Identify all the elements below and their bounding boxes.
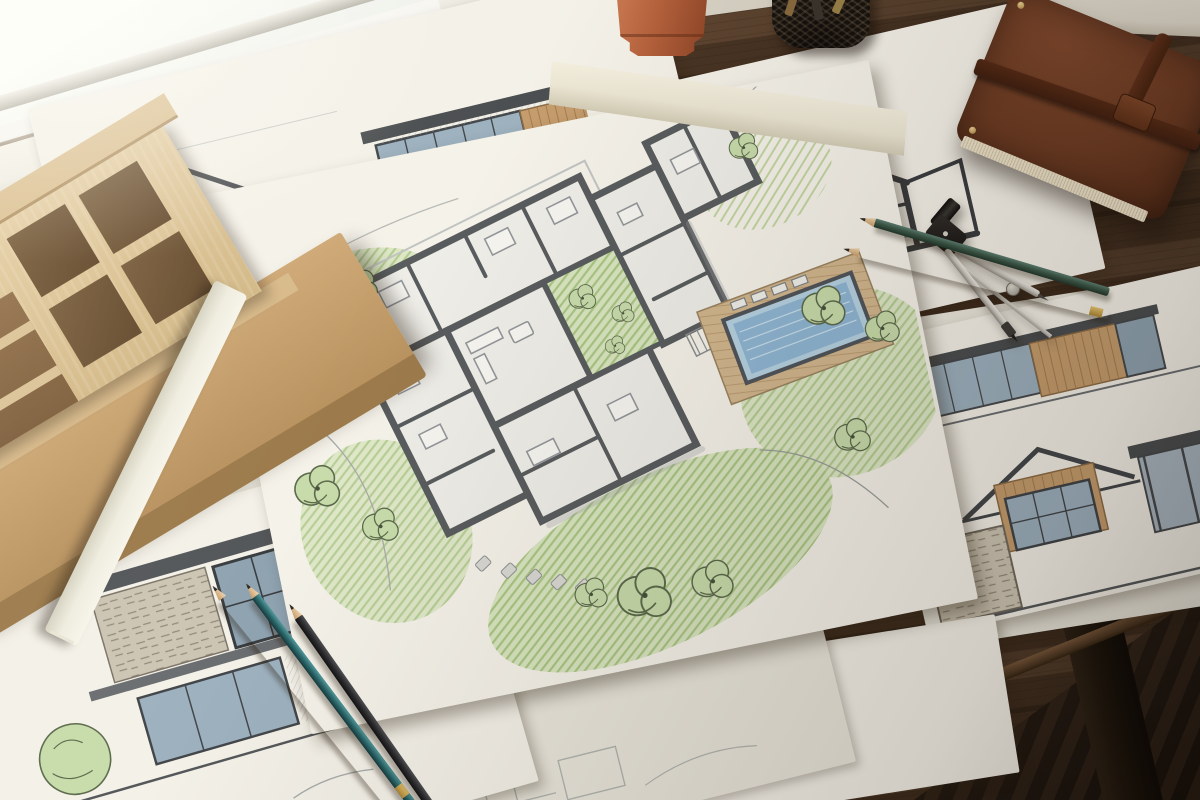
- pencil-in-cup: [809, 0, 824, 21]
- model-window: [79, 161, 172, 254]
- journal-stud: [968, 126, 977, 135]
- model-window: [7, 204, 100, 297]
- model-window: [49, 274, 142, 367]
- journal-strap: [973, 58, 1200, 151]
- pen-cup: [772, 0, 870, 48]
- journal-stud: [1016, 1, 1025, 10]
- photo-architects-desk: [0, 0, 1200, 800]
- pencil-in-cup: [784, 0, 800, 17]
- pencil-in-cup: [831, 0, 848, 15]
